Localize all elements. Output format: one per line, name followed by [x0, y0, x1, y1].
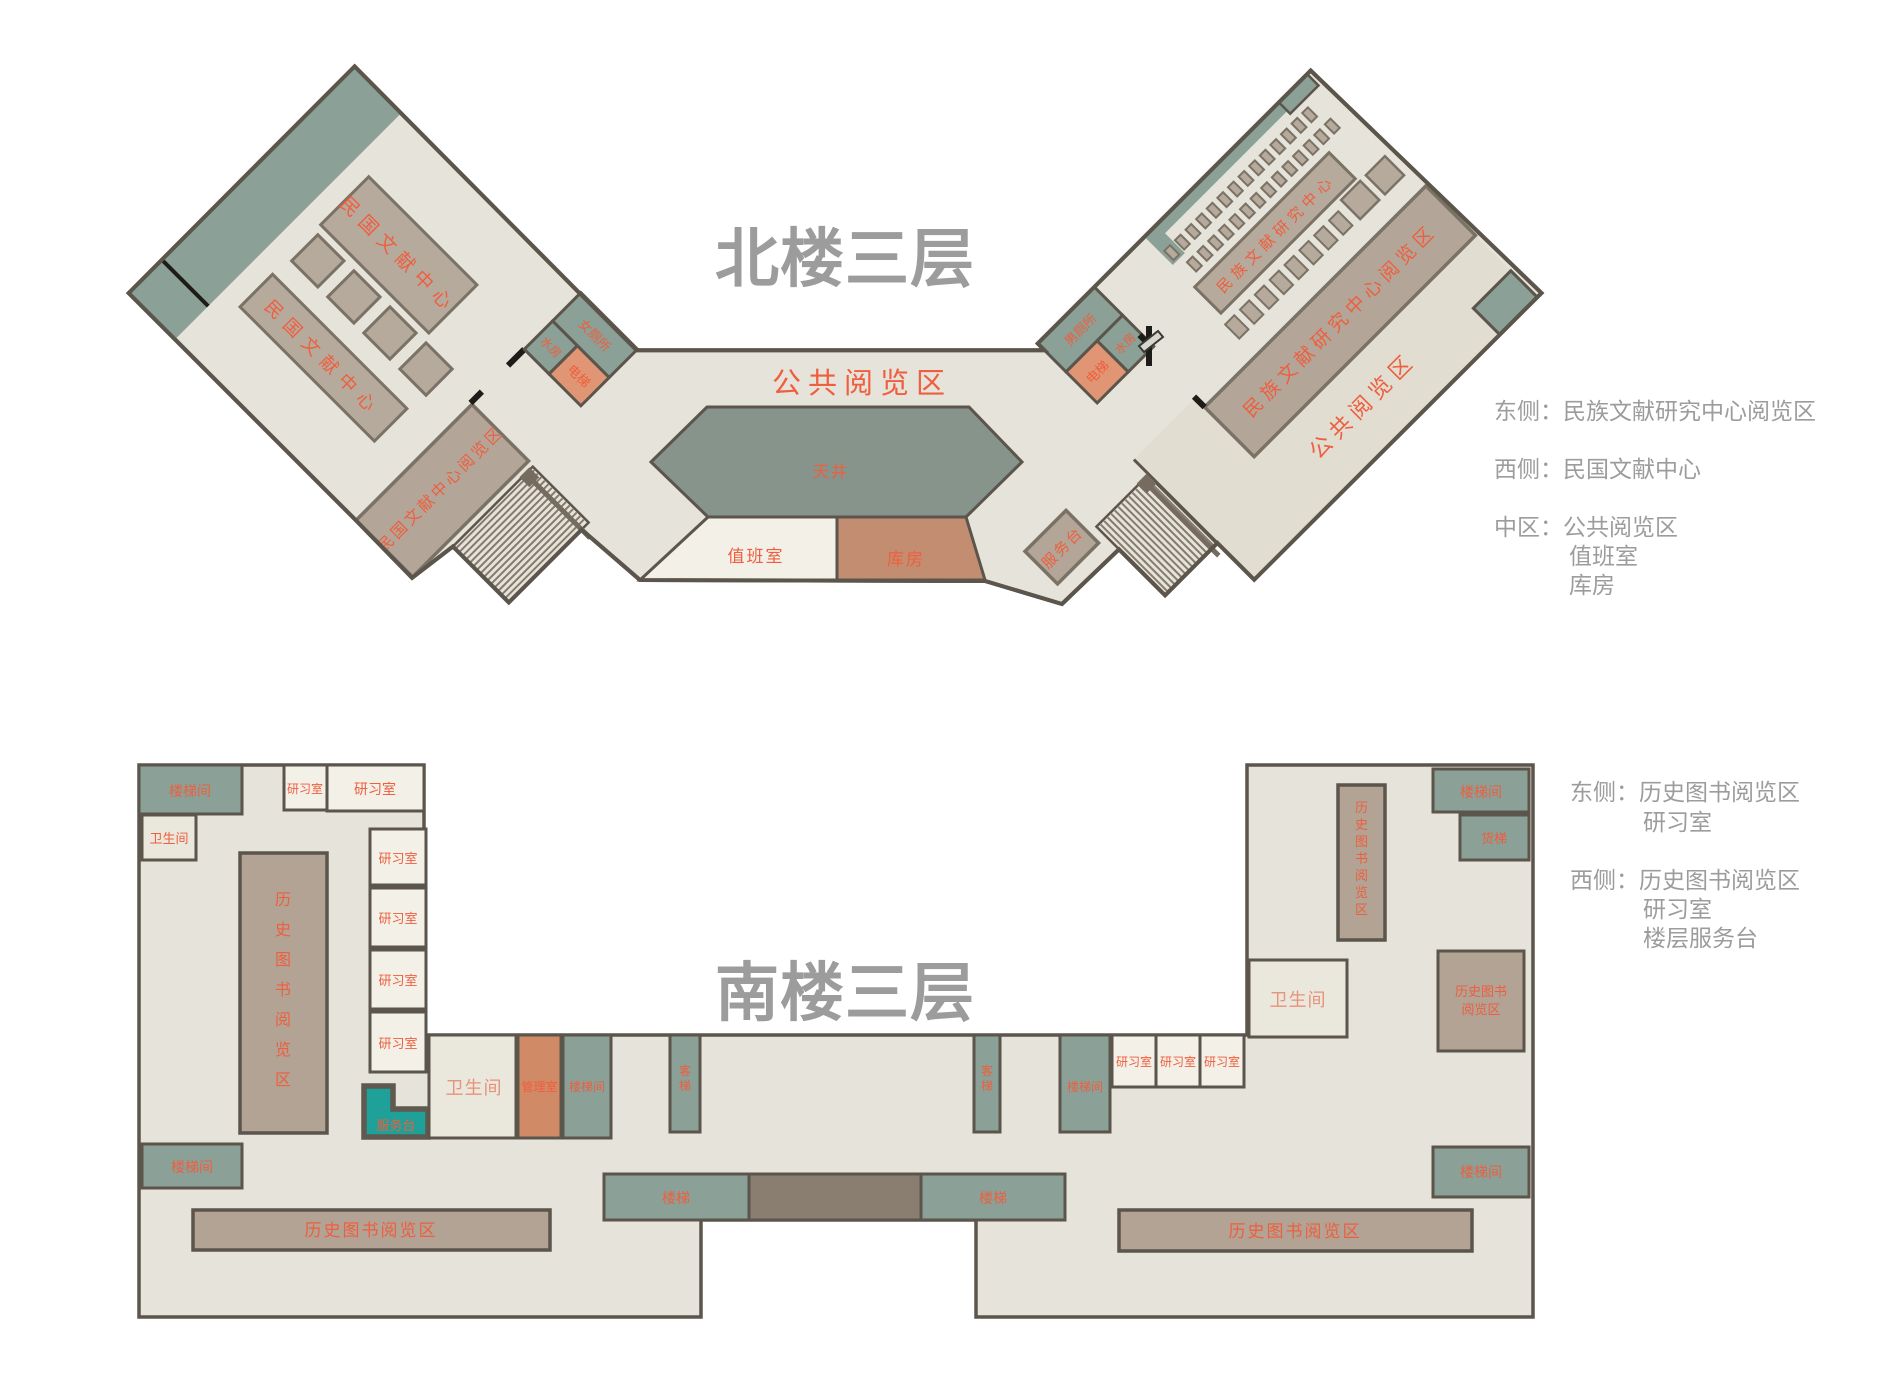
svg-text:区: 区 [275, 1072, 291, 1089]
svg-text:历史图书: 历史图书 [1455, 984, 1507, 999]
svg-text:服务台: 服务台 [376, 1118, 415, 1133]
svg-text:历史图书阅览区: 历史图书阅览区 [1229, 1222, 1362, 1241]
svg-text:天井: 天井 [813, 463, 849, 481]
svg-text:历: 历 [1355, 800, 1368, 815]
svg-text:阅览区: 阅览区 [1461, 1002, 1500, 1017]
svg-text:公共阅览区: 公共阅览区 [772, 367, 952, 400]
svg-text:览: 览 [275, 1041, 291, 1059]
svg-text:值班室: 值班室 [1569, 543, 1638, 569]
svg-text:卫生间: 卫生间 [1270, 990, 1327, 1010]
svg-text:区: 区 [1355, 902, 1368, 917]
svg-text:研习室: 研习室 [378, 973, 417, 988]
svg-text:史: 史 [1355, 817, 1368, 832]
svg-text:梯: 梯 [981, 1079, 993, 1093]
svg-text:楼层服务台: 楼层服务台 [1643, 925, 1758, 951]
svg-text:库房: 库房 [887, 550, 925, 569]
svg-text:库房: 库房 [1569, 572, 1615, 598]
svg-text:楼梯: 楼梯 [979, 1190, 1007, 1206]
svg-text:卫生间: 卫生间 [446, 1078, 503, 1098]
svg-text:客: 客 [679, 1063, 691, 1078]
svg-text:南楼三层: 南楼三层 [715, 957, 975, 1029]
svg-text:中区：公共阅览区: 中区：公共阅览区 [1494, 514, 1678, 540]
svg-text:楼梯间: 楼梯间 [1460, 1164, 1502, 1180]
svg-text:楼梯间: 楼梯间 [1460, 784, 1502, 800]
svg-text:研习室: 研习室 [1643, 896, 1712, 922]
svg-text:梯: 梯 [679, 1079, 691, 1093]
svg-text:研习室: 研习室 [1643, 809, 1712, 835]
svg-text:货梯: 货梯 [1481, 831, 1507, 846]
svg-text:楼梯: 楼梯 [662, 1190, 690, 1206]
svg-text:研习室: 研习室 [1116, 1054, 1152, 1069]
svg-text:研习室: 研习室 [287, 781, 323, 796]
svg-text:研习室: 研习室 [378, 911, 417, 926]
svg-text:研习室: 研习室 [354, 781, 396, 797]
svg-text:西侧：民国文献中心: 西侧：民国文献中心 [1494, 456, 1701, 482]
svg-text:楼梯间: 楼梯间 [171, 1159, 213, 1175]
svg-text:书: 书 [1355, 851, 1368, 866]
svg-text:东侧：历史图书阅览区: 东侧：历史图书阅览区 [1570, 779, 1800, 805]
svg-text:客: 客 [981, 1063, 993, 1078]
svg-text:图: 图 [1355, 834, 1368, 849]
svg-text:研习室: 研习室 [378, 851, 417, 866]
svg-text:楼梯间: 楼梯间 [569, 1079, 605, 1094]
svg-text:值班室: 值班室 [728, 547, 785, 566]
svg-text:阅: 阅 [1355, 868, 1368, 883]
svg-text:楼梯间: 楼梯间 [169, 783, 211, 799]
svg-text:研习室: 研习室 [1160, 1054, 1196, 1069]
svg-text:研习室: 研习室 [1204, 1054, 1240, 1069]
svg-text:历史图书阅览区: 历史图书阅览区 [305, 1221, 438, 1240]
svg-text:东侧：民族文献研究中心阅览区: 东侧：民族文献研究中心阅览区 [1494, 398, 1816, 424]
svg-text:北楼三层: 北楼三层 [715, 223, 975, 295]
svg-text:览: 览 [1355, 885, 1368, 900]
svg-text:历: 历 [275, 892, 291, 909]
svg-text:西侧：历史图书阅览区: 西侧：历史图书阅览区 [1570, 867, 1800, 893]
svg-text:图: 图 [275, 952, 291, 969]
svg-text:阅: 阅 [275, 1011, 291, 1029]
svg-text:研习室: 研习室 [378, 1036, 417, 1051]
svg-text:史: 史 [275, 921, 291, 939]
svg-text:管理室: 管理室 [521, 1079, 557, 1094]
svg-text:楼梯间: 楼梯间 [1067, 1079, 1103, 1094]
svg-text:卫生间: 卫生间 [149, 831, 188, 846]
svg-text:书: 书 [275, 981, 291, 999]
